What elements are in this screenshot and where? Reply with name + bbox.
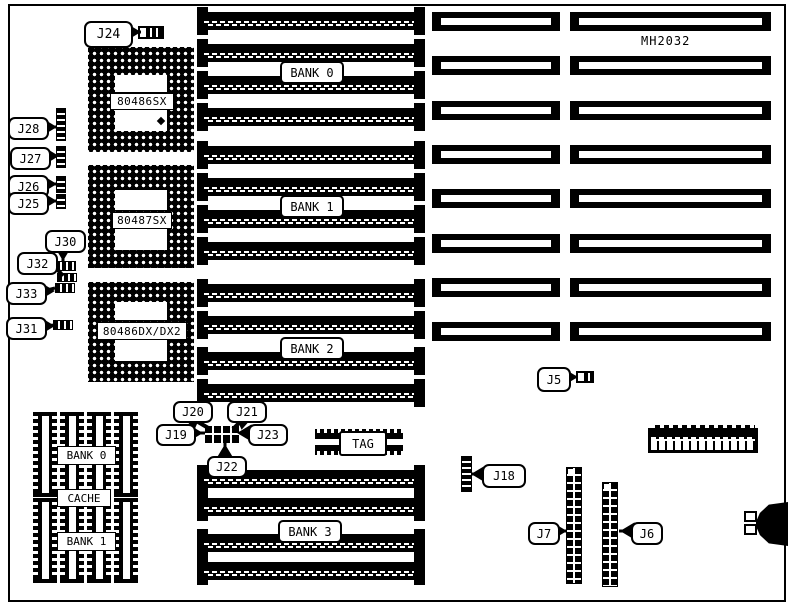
callout-j7: J7: [528, 522, 560, 545]
cpu-name-80486sx: 80486SX: [110, 93, 174, 110]
isa-slot-long: [570, 145, 771, 164]
j31-connector: [53, 320, 73, 330]
callout-j19: J19: [156, 424, 196, 446]
callout-j25: J25: [8, 192, 49, 215]
isa-slot-long: [570, 278, 771, 297]
socket-window: [115, 229, 167, 250]
j30-connector: [55, 261, 76, 271]
cache-chip: [114, 412, 138, 497]
simm-bar: [202, 108, 420, 126]
simm-clip: [414, 347, 425, 375]
isa-slot-short: [432, 12, 560, 31]
simm-clip: [414, 279, 425, 307]
simm-slot: [197, 279, 425, 307]
j24-connector: [138, 26, 164, 39]
j32-connector: [57, 273, 77, 282]
isa-slot-short: [432, 234, 560, 253]
socket-window: [115, 340, 167, 361]
simm-clip: [414, 237, 425, 265]
callout-j6: J6: [631, 522, 663, 545]
cpu-name-80487sx: 80487SX: [112, 212, 172, 229]
callout-j20: J20: [173, 401, 213, 423]
socket-window: [115, 190, 167, 210]
callout-j5: J5: [537, 367, 571, 392]
simm-bar: [202, 178, 420, 196]
isa-slot-long: [570, 101, 771, 120]
bank1-label: BANK 1: [280, 195, 344, 218]
callout-j22: J22: [207, 456, 247, 478]
callout-j30: J30: [45, 230, 86, 253]
pin1-marker: [568, 469, 573, 474]
j25-connector: [56, 194, 66, 209]
simm-slot: [197, 103, 425, 131]
simm-slot: [197, 237, 425, 265]
socket-window: [115, 302, 167, 320]
cache-label: CACHE: [57, 489, 111, 507]
callout-j24: J24: [84, 21, 133, 48]
j18-connector: [461, 456, 472, 492]
simm-bar: [202, 242, 420, 260]
socket-window: [115, 75, 167, 92]
isa-slot-long: [570, 322, 771, 341]
part-number-label: MH2032: [641, 34, 690, 48]
simm-bar: [202, 284, 420, 302]
callout-j33: J33: [6, 282, 47, 305]
callout-j31: J31: [6, 317, 47, 340]
simm-clip: [414, 465, 425, 493]
j6-header: [602, 482, 618, 587]
isa-slot-long: [570, 56, 771, 75]
power-connector: [648, 428, 758, 453]
callout-j18: J18: [482, 464, 526, 488]
simm-bar: [202, 44, 420, 62]
keyboard-connector-pin: [744, 524, 757, 535]
isa-slot-long: [570, 189, 771, 208]
callout-j23: J23: [248, 424, 288, 446]
isa-slot-short: [432, 145, 560, 164]
motherboard-diagram: 80486SX 80487SX 80486DX/DX2 BANK 0 BANK …: [0, 0, 794, 611]
callout-j27: J27: [10, 147, 51, 170]
simm-clip: [414, 529, 425, 557]
isa-slot-short: [432, 56, 560, 75]
callout-j21: J21: [227, 401, 267, 423]
isa-slot-short: [432, 278, 560, 297]
cache-chip: [33, 498, 57, 583]
simm-clip: [414, 311, 425, 339]
j7-header: [566, 467, 582, 584]
simm-slot: [197, 493, 425, 521]
simm-clip: [414, 173, 425, 201]
simm-clip: [414, 39, 425, 67]
simm-clip: [414, 493, 425, 521]
simm-clip: [414, 71, 425, 99]
simm-slot: [197, 311, 425, 339]
callout-j32: J32: [17, 252, 58, 275]
jumper-block-j19-j23: [205, 426, 239, 443]
simm-clip: [414, 205, 425, 233]
j28-connector: [56, 108, 66, 141]
simm-clip: [414, 557, 425, 585]
bank3-label: BANK 3: [278, 520, 342, 543]
tag-label: TAG: [339, 431, 387, 456]
isa-slot-long: [570, 234, 771, 253]
isa-slot-short: [432, 101, 560, 120]
cpu-socket-80486dx: 80486DX/DX2: [88, 282, 194, 382]
fpu-socket-80487sx: 80487SX: [88, 165, 194, 268]
simm-slot: [197, 7, 425, 35]
simm-bar: [202, 12, 420, 30]
j33-connector: [55, 283, 75, 293]
simm-clip: [414, 379, 425, 407]
simm-slot: [197, 141, 425, 169]
keyboard-connector-pin: [744, 511, 757, 522]
simm-bar: [202, 498, 420, 516]
simm-bar: [202, 562, 420, 580]
simm-bar: [202, 384, 420, 402]
cache-chip: [33, 412, 57, 497]
j26-connector: [56, 176, 66, 193]
bank2-label: BANK 2: [280, 337, 344, 360]
power-connector-pins: [655, 425, 755, 431]
j27-connector: [56, 146, 66, 168]
bank0-label: BANK 0: [280, 61, 344, 84]
simm-bar: [202, 146, 420, 164]
simm-clip: [414, 103, 425, 131]
cpu-name-80486dx: 80486DX/DX2: [97, 322, 187, 340]
simm-slot: [197, 557, 425, 585]
simm-clip: [414, 141, 425, 169]
cache-bank0-label: BANK 0: [57, 446, 116, 465]
simm-bar: [202, 316, 420, 334]
pin1-marker: [604, 484, 609, 489]
cache-chip: [114, 498, 138, 583]
j5-connector: [576, 371, 594, 383]
simm-clip: [414, 7, 425, 35]
cpu-socket-80486sx: 80486SX: [88, 47, 194, 152]
isa-slot-short: [432, 189, 560, 208]
isa-slot-long: [570, 12, 771, 31]
cache-bank1-label: BANK 1: [57, 532, 116, 551]
callout-j28: J28: [8, 117, 49, 140]
isa-slot-short: [432, 322, 560, 341]
